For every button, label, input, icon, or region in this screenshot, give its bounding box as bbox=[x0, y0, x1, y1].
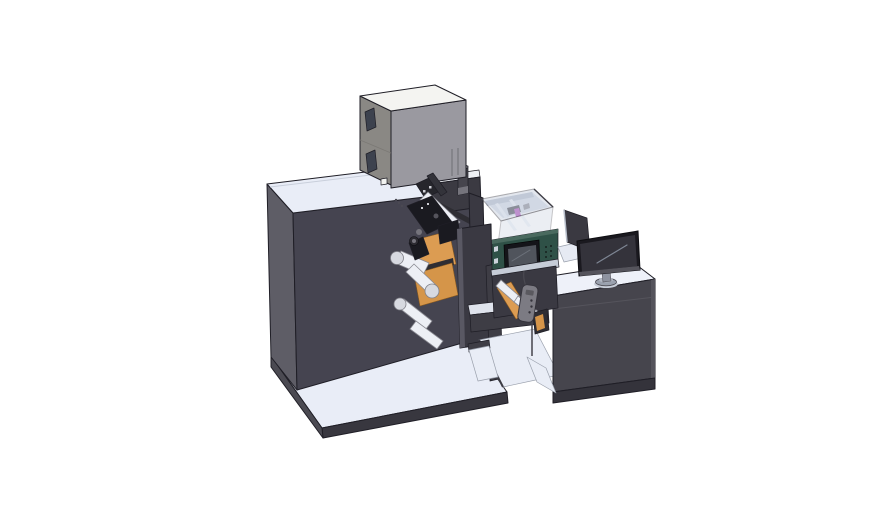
roller-end-cap bbox=[391, 252, 404, 265]
mech-speck bbox=[429, 186, 432, 189]
seam-dot bbox=[395, 199, 397, 201]
box-window bbox=[366, 150, 377, 173]
panel-button bbox=[494, 246, 498, 252]
box-left-face bbox=[360, 96, 391, 185]
box-label-plate bbox=[381, 178, 387, 185]
desk-right-edge bbox=[651, 279, 655, 390]
mech-speck bbox=[427, 203, 429, 205]
seam-dot bbox=[398, 202, 400, 204]
roller-end-cap bbox=[394, 298, 406, 310]
panel-button bbox=[494, 258, 498, 264]
mech-pin bbox=[434, 214, 439, 219]
mech-roller-pin bbox=[416, 229, 422, 235]
desk-front-face bbox=[553, 279, 655, 392]
box-front-face bbox=[391, 100, 466, 188]
box-window bbox=[365, 108, 376, 131]
machine-assembly-render bbox=[0, 0, 888, 522]
mech-speck bbox=[421, 207, 423, 209]
mech-speck bbox=[423, 190, 426, 193]
electrical-box bbox=[360, 85, 466, 188]
mech-hub-center bbox=[412, 239, 416, 243]
roller-end-cap bbox=[425, 284, 439, 298]
cad-render-viewport bbox=[0, 0, 888, 522]
seam-dot bbox=[401, 205, 403, 207]
printer-module bbox=[482, 189, 559, 278]
